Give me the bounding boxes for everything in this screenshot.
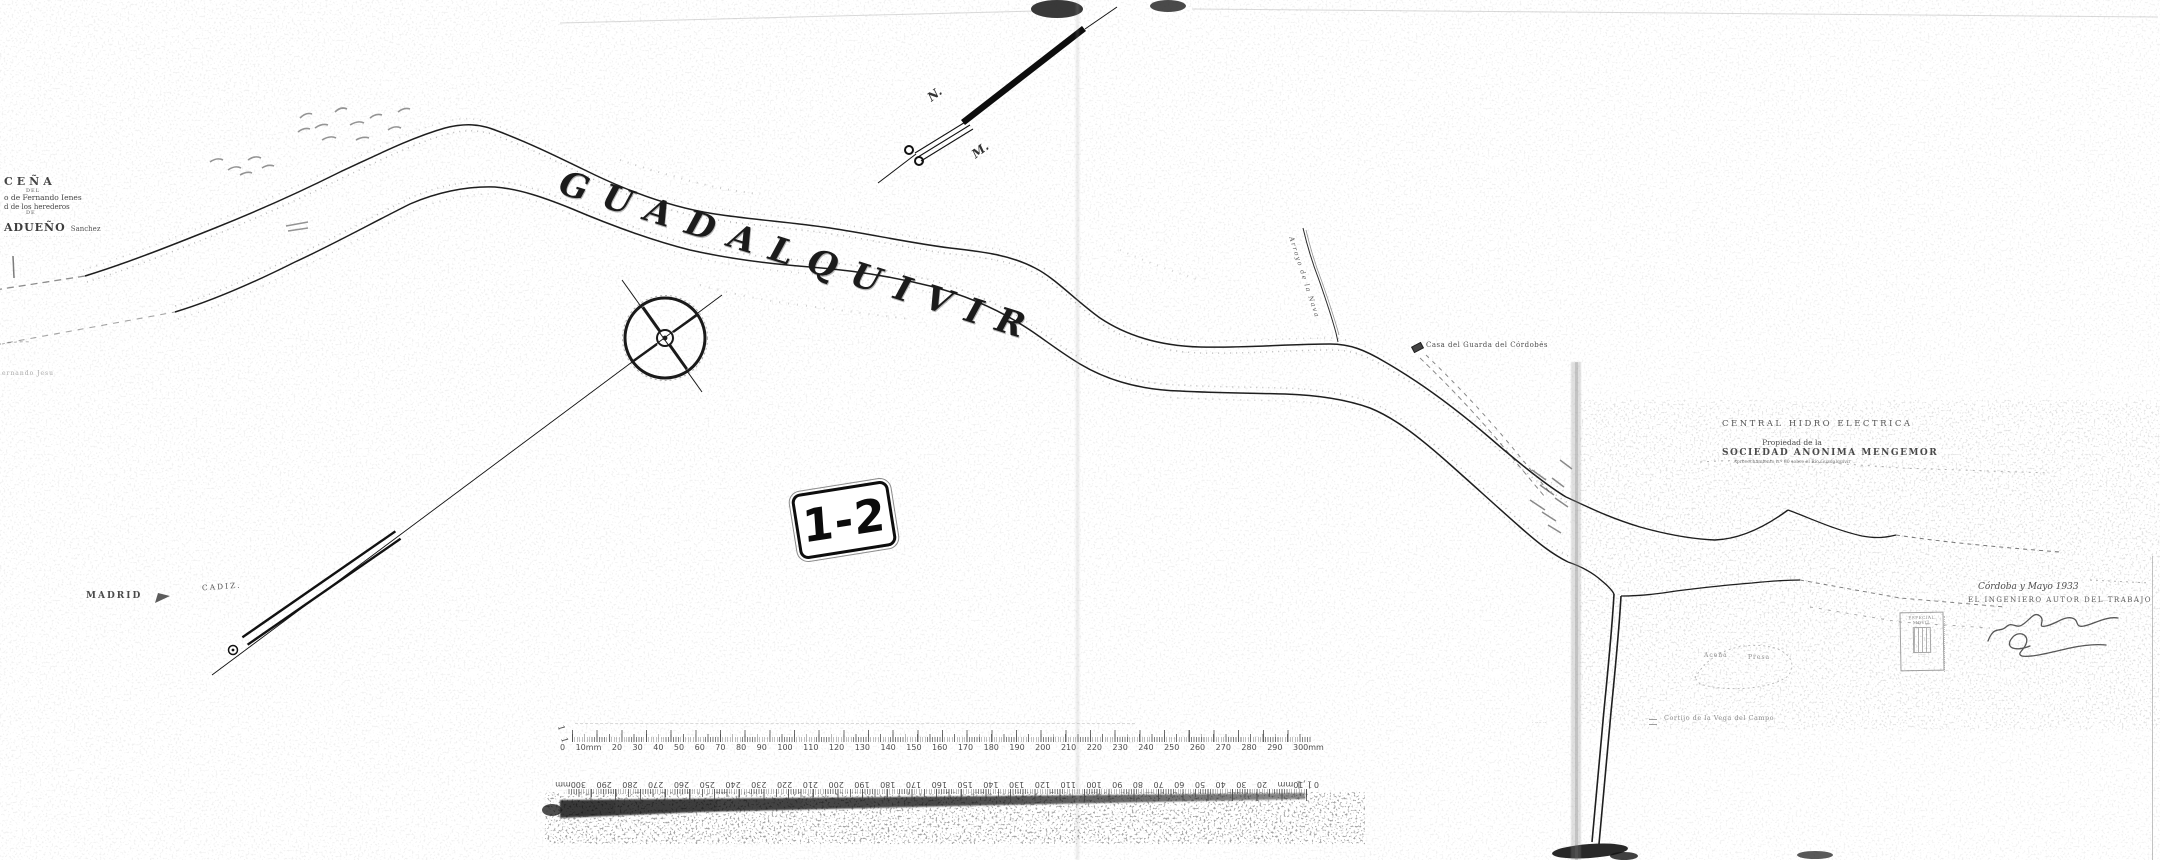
scale-tick-label: 30 bbox=[1236, 780, 1246, 789]
scale-tick-label: 50 bbox=[674, 743, 684, 752]
stamp-footer: ·· ···· bbox=[1901, 654, 1943, 660]
scale-tick-label: 100 bbox=[777, 743, 792, 752]
scale-tick-label: 140 bbox=[880, 743, 895, 752]
scale-tick-label: 0 bbox=[1314, 780, 1319, 789]
scale-tick-label: 70 bbox=[715, 743, 725, 752]
ruler-number-row: 010mm20304050607080901001101201301401501… bbox=[555, 780, 1319, 789]
cortijo-icon bbox=[1649, 719, 1657, 725]
place-date-label: Córdoba y Mayo 1933 bbox=[1978, 582, 2079, 592]
scale-tick-label: 40 bbox=[653, 743, 663, 752]
stamp-header: ESPECIAL MOVIL bbox=[1901, 615, 1943, 626]
scale-tick-label: 250 bbox=[700, 780, 715, 789]
title-block: CENTRAL HIDRO ELECTRICA ················… bbox=[1722, 420, 1862, 465]
faint-marginal-note: ernando Jesu bbox=[2, 371, 54, 378]
scale-tick-label: 70 bbox=[1154, 780, 1164, 789]
scale-tick-label: 150 bbox=[906, 743, 921, 752]
scale-tick-label: 210 bbox=[1061, 743, 1076, 752]
scale-tick-label: 40 bbox=[1216, 780, 1226, 789]
scale-tick-label: 60 bbox=[695, 743, 705, 752]
scale-tick-label: 290 bbox=[1267, 743, 1282, 752]
scale-tick-label: 300mm bbox=[555, 780, 586, 789]
scale-tick-label: 200 bbox=[1035, 743, 1050, 752]
scale-tick-label: 90 bbox=[757, 743, 767, 752]
scale-tick-label: 60 bbox=[1174, 780, 1184, 789]
scale-tick-label: 240 bbox=[725, 780, 740, 789]
stamp-emblem-icon bbox=[1913, 627, 1931, 653]
route-label-madrid: MADRID bbox=[86, 591, 142, 601]
scale-tick-label: 300mm bbox=[1293, 743, 1324, 752]
scale-tick-label: 230 bbox=[751, 780, 766, 789]
scale-tick-label: 110 bbox=[1061, 780, 1076, 789]
ruler-tick-layer-1mm bbox=[567, 789, 1307, 794]
title-line2: Propiedad de la bbox=[1722, 439, 1862, 448]
scale-tick-label: 120 bbox=[829, 743, 844, 752]
scale-tick-label: 280 bbox=[622, 780, 637, 789]
scale-tick-label: 30 bbox=[633, 743, 643, 752]
paper-stain-band-core bbox=[1575, 362, 1578, 860]
scale-tick-label: 20 bbox=[612, 743, 622, 752]
paper-right-edge bbox=[2152, 556, 2153, 860]
left-note-title: CEÑA bbox=[4, 176, 114, 189]
scale-tick-label: 240 bbox=[1138, 743, 1153, 752]
left-note-fine-print: ·· ···· ········ · ·· ······ ·· bbox=[4, 235, 114, 240]
scale-tick-label: 210 bbox=[803, 780, 818, 789]
left-note-owner-suffix: Sanchez bbox=[71, 225, 101, 233]
scale-tick-label: 170 bbox=[906, 780, 921, 789]
left-note-line2: d de los herederos bbox=[4, 203, 114, 211]
left-property-note: CEÑA DEL o de Fernando Ienes d de los he… bbox=[4, 176, 114, 240]
scale-tick-label: 120 bbox=[1035, 780, 1050, 789]
scale-tick-label: 260 bbox=[1190, 743, 1205, 752]
scale-tick-label: 290 bbox=[597, 780, 612, 789]
title-line3: SOCIEDAD ANONIMA MENGEMOR bbox=[1722, 448, 1862, 458]
scale-tick-label: 80 bbox=[736, 743, 746, 752]
scale-tick-label: 90 bbox=[1112, 780, 1122, 789]
left-note-owner: ADUEÑO bbox=[4, 221, 66, 234]
scale-tick-label: 270 bbox=[648, 780, 663, 789]
scale-tick-label: 180 bbox=[880, 780, 895, 789]
title-line1: CENTRAL HIDRO ELECTRICA bbox=[1722, 420, 1862, 430]
scale-tick-label: 100 bbox=[1086, 780, 1101, 789]
scale-tick-label: 160 bbox=[932, 743, 947, 752]
scanned-map-page: GUADALQUIVIR CEÑA DEL o de Fernando Iene… bbox=[0, 0, 2160, 860]
title-line1-sub: ················· ········ bbox=[1722, 431, 1862, 435]
left-note-owner-row: ADUEÑO Sanchez bbox=[4, 217, 114, 235]
ruler-ticks bbox=[567, 789, 1307, 800]
scale-tick-label: 50 bbox=[1195, 780, 1205, 789]
ruler-tick-layer-1mm bbox=[572, 737, 1312, 742]
erased-ruler-remnant bbox=[575, 723, 1135, 724]
scale-tick-label: 20 bbox=[1257, 780, 1267, 789]
scale-tick-label: 280 bbox=[1241, 743, 1256, 752]
scale-tick-label: 10mm bbox=[576, 743, 602, 752]
scale-ruler-bottom-inverted: 010mm20304050607080901001101201301401501… bbox=[563, 776, 1311, 802]
ruler-ticks bbox=[572, 730, 1312, 742]
scale-tick-label: 160 bbox=[932, 780, 947, 789]
scale-tick-label: 230 bbox=[1113, 743, 1128, 752]
acena-label: Aceña bbox=[1704, 653, 1728, 660]
guard-house-label: Casa del Guarda del Córdobés bbox=[1426, 341, 1548, 349]
scale-tick-label: 110 bbox=[803, 743, 818, 752]
scale-tick-label: 220 bbox=[1087, 743, 1102, 752]
scale-tick-label: 150 bbox=[957, 780, 972, 789]
scale-tick-label: 190 bbox=[1009, 743, 1024, 752]
scale-tick-label: 140 bbox=[983, 780, 998, 789]
scale-tick-label: 200 bbox=[829, 780, 844, 789]
scale-tick-label: 80 bbox=[1133, 780, 1143, 789]
scale-tick-label: 180 bbox=[984, 743, 999, 752]
presa-label: Presa bbox=[1748, 655, 1770, 662]
cortijo-label: Cortijo de la Vega del Campo bbox=[1664, 715, 1774, 722]
ruler-number-row: 010mm20304050607080901001101201301401501… bbox=[560, 743, 1324, 752]
tax-stamp: ESPECIAL MOVIL ·· ···· bbox=[1899, 612, 1944, 672]
paper-fold-line bbox=[1076, 0, 1079, 860]
left-note-line1: o de Fernando Ienes bbox=[4, 194, 114, 203]
scale-tick-label: 220 bbox=[777, 780, 792, 789]
title-line4: Aprovechamiento n.º 80 sobre el Río Guad… bbox=[1722, 460, 1862, 465]
scale-tick-label: 130 bbox=[855, 743, 870, 752]
scale-ruler-top: 010mm20304050607080901001101201301401501… bbox=[572, 730, 1312, 756]
illegible-small-label: · ···· ·· bbox=[1532, 721, 1546, 727]
edge-blot-2 bbox=[1150, 0, 1186, 12]
scale-tick-label: 130 bbox=[1009, 780, 1024, 789]
scale-tick-label: 250 bbox=[1164, 743, 1179, 752]
scale-tick-label: 0 bbox=[560, 743, 565, 752]
scale-tick-label: 170 bbox=[958, 743, 973, 752]
scale-tick-label: 260 bbox=[674, 780, 689, 789]
scale-ratio-mark-bottom: 1,1 bbox=[1295, 778, 1312, 788]
sheet-number: 1-2 bbox=[801, 487, 888, 553]
scale-tick-label: 270 bbox=[1216, 743, 1231, 752]
scale-tick-label: 190 bbox=[854, 780, 869, 789]
engineer-role-label: EL INGENIERO AUTOR DEL TRABAJO bbox=[1968, 596, 2152, 604]
